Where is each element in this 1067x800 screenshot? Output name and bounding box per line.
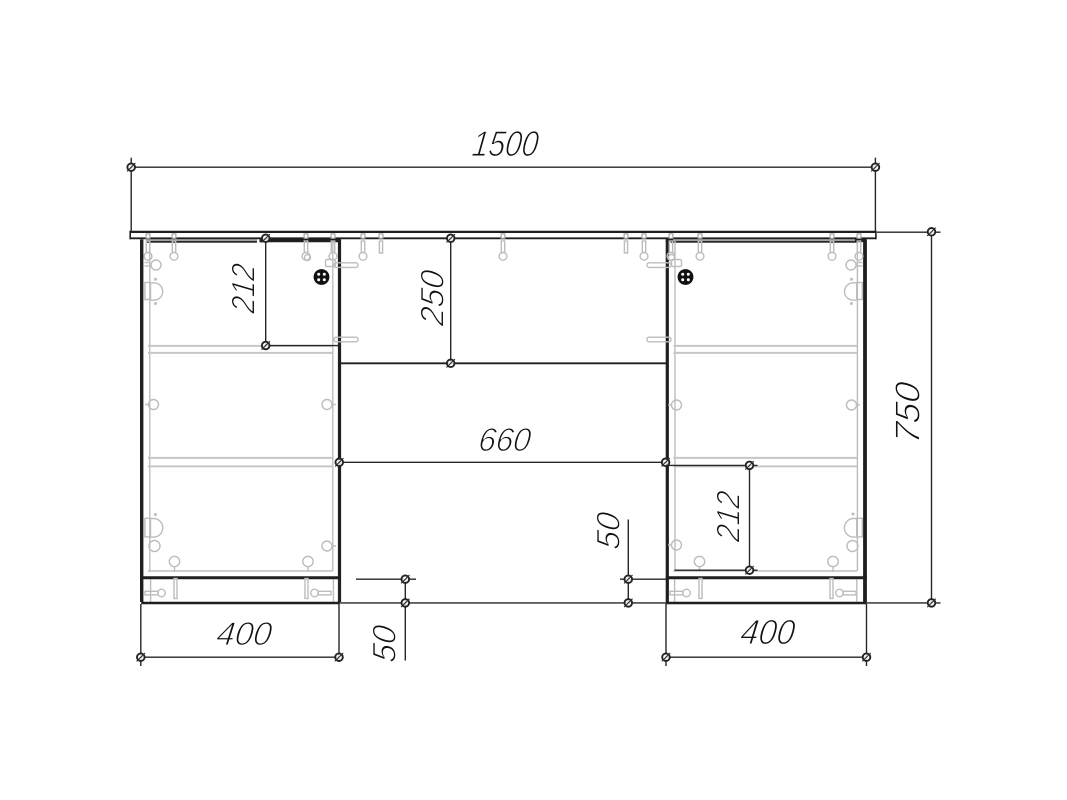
svg-text:660: 660	[477, 422, 534, 459]
svg-text:1500: 1500	[470, 123, 541, 164]
svg-text:400: 400	[214, 616, 274, 653]
svg-text:400: 400	[739, 613, 798, 652]
svg-text:212: 212	[226, 261, 263, 315]
svg-text:50: 50	[591, 510, 628, 552]
svg-text:250: 250	[415, 267, 452, 328]
svg-text:750: 750	[889, 379, 928, 445]
svg-text:50: 50	[367, 623, 404, 665]
svg-text:212: 212	[711, 489, 748, 544]
